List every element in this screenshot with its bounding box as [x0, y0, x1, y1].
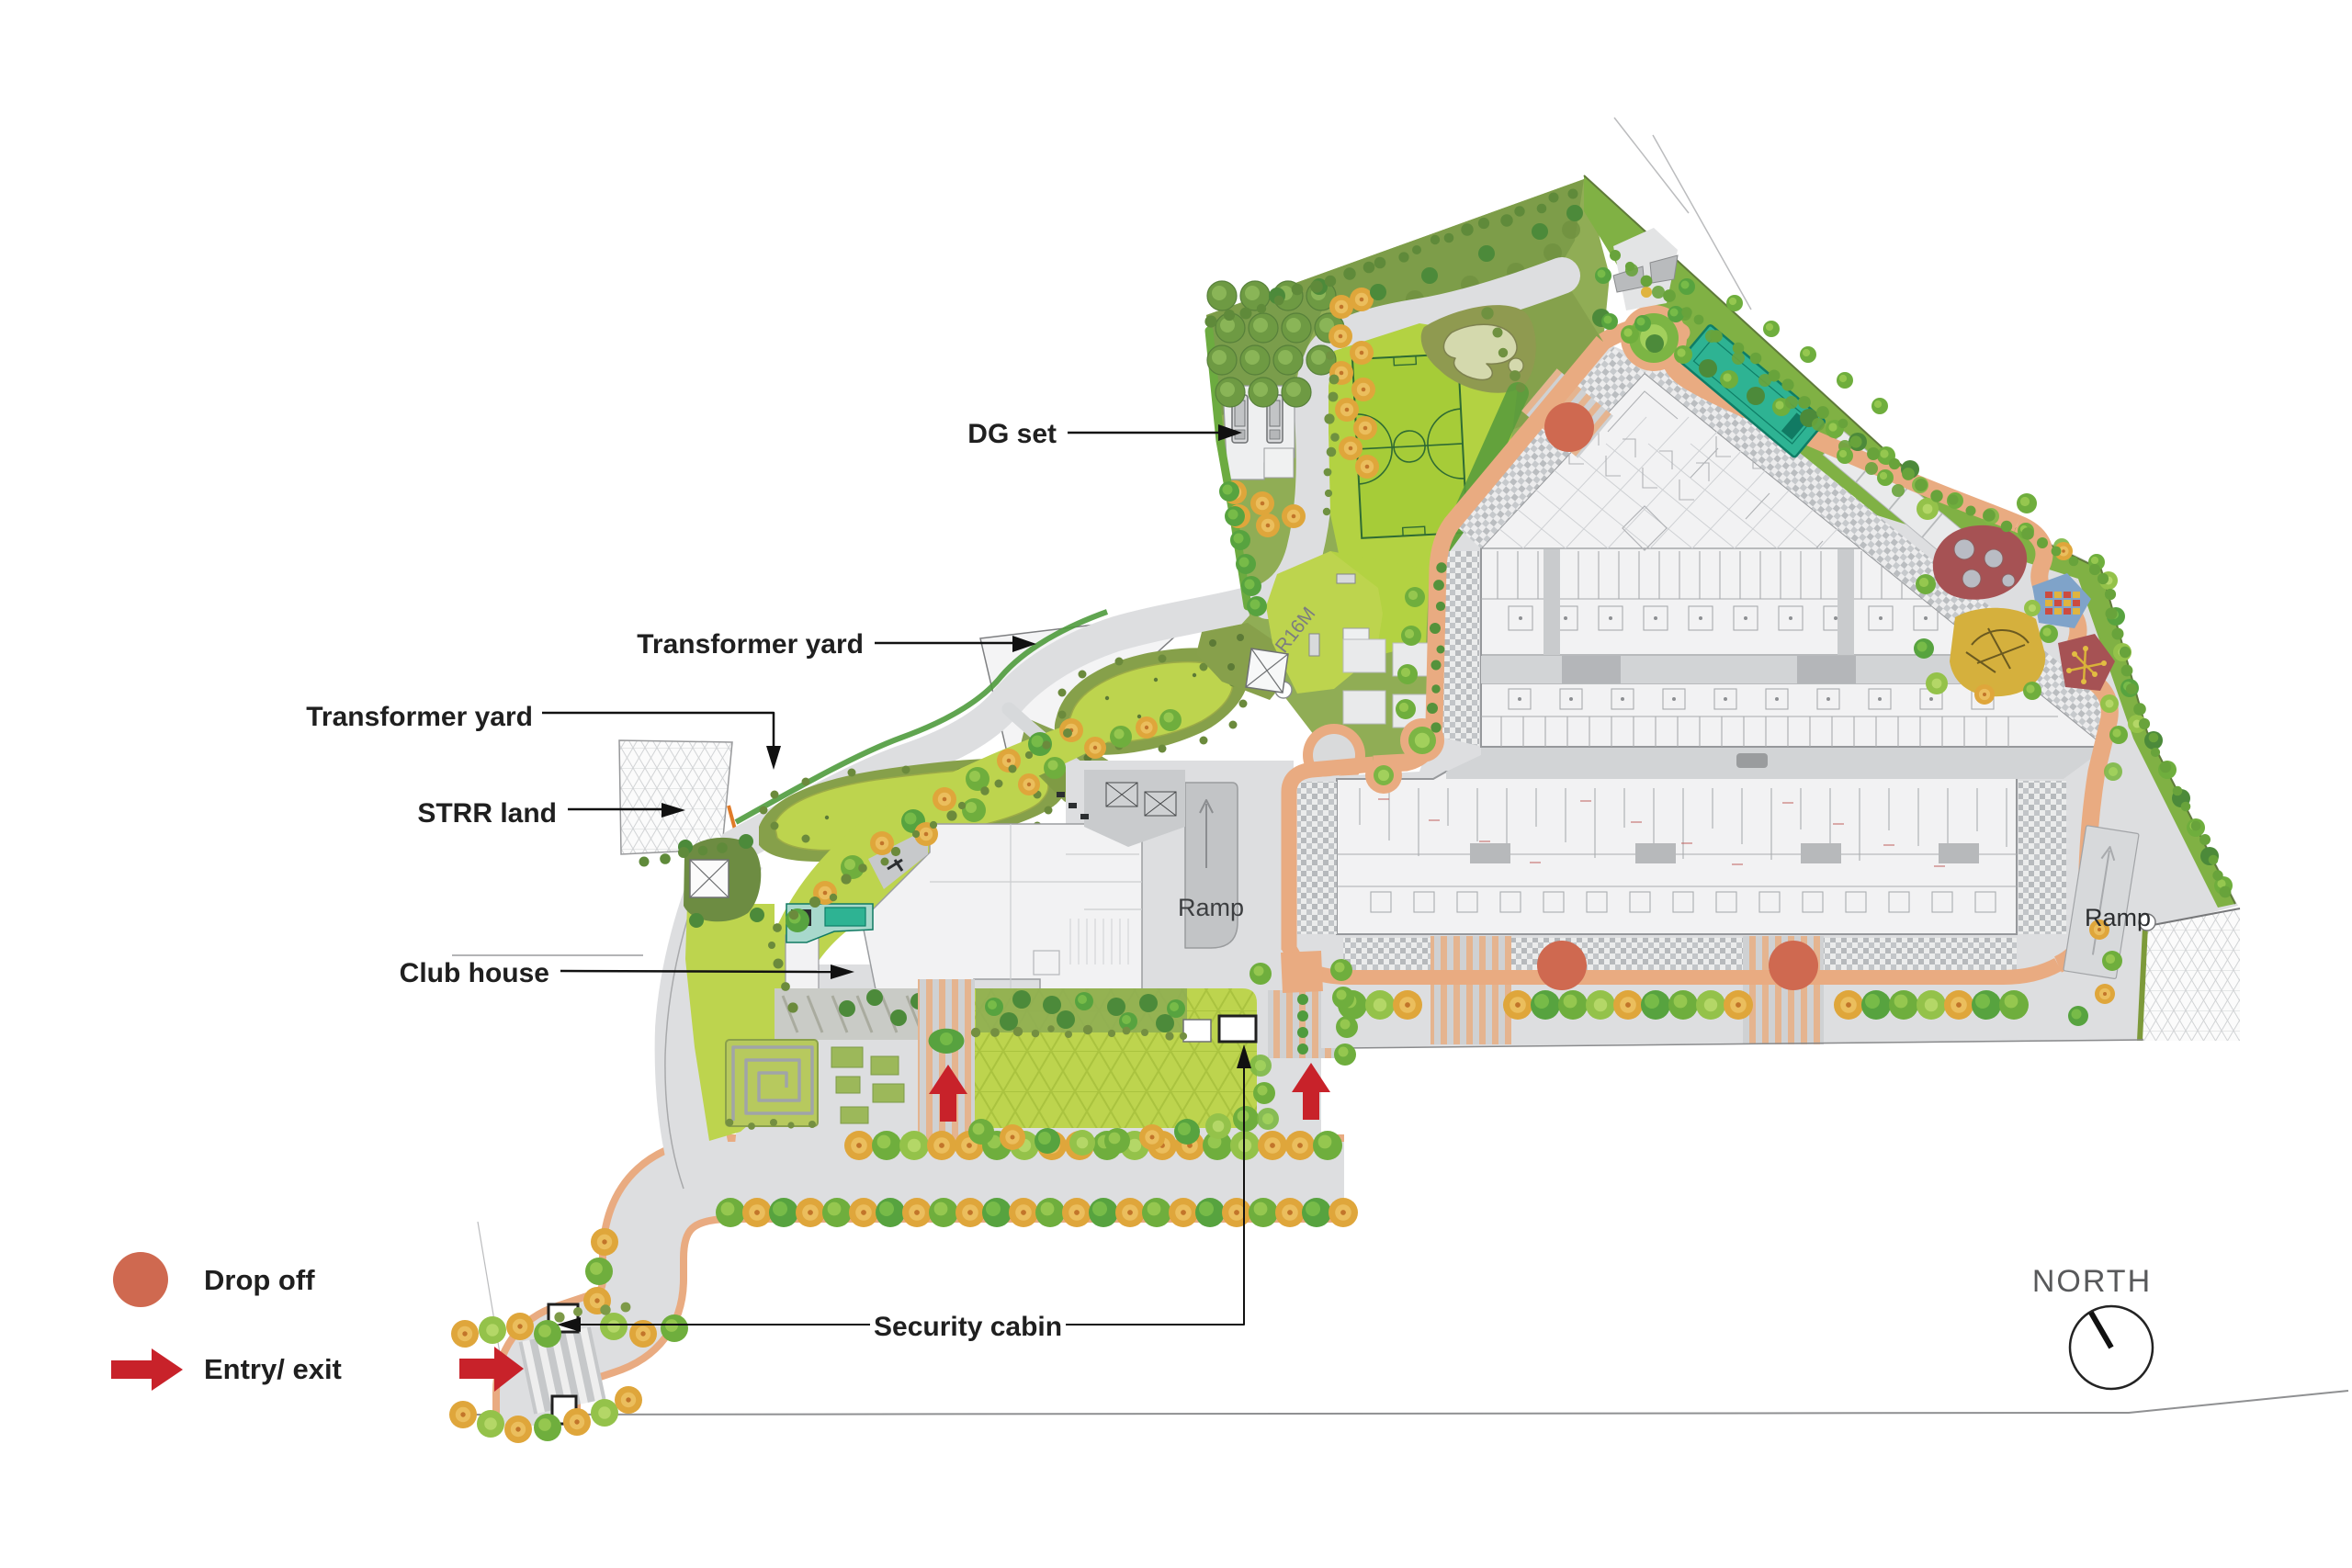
svg-text:STRR land: STRR land — [417, 798, 557, 829]
svg-text:Entry/ exit: Entry/ exit — [204, 1353, 342, 1385]
svg-text:Transformer yard: Transformer yard — [306, 702, 533, 732]
svg-text:Drop off: Drop off — [204, 1264, 315, 1296]
svg-text:Club house: Club house — [400, 958, 549, 988]
svg-text:Ramp: Ramp — [1178, 894, 1244, 921]
svg-text:Transformer yard: Transformer yard — [637, 629, 864, 660]
svg-text:Security cabin: Security cabin — [874, 1312, 1062, 1342]
svg-text:Ramp: Ramp — [2085, 904, 2151, 931]
svg-text:NORTH: NORTH — [2032, 1264, 2152, 1299]
svg-text:DG set: DG set — [967, 419, 1057, 449]
